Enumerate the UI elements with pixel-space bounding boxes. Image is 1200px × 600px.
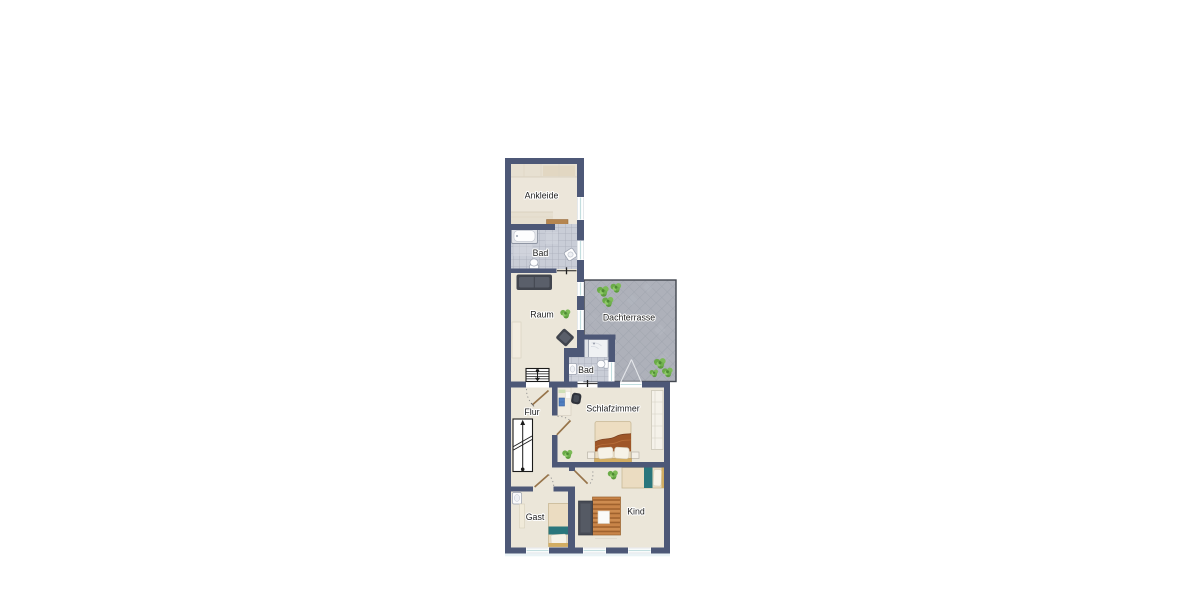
svg-text:Gast: Gast — [526, 512, 545, 522]
svg-text:Dachterrasse: Dachterrasse — [603, 312, 655, 322]
svg-text:Ankleide: Ankleide — [525, 191, 559, 201]
svg-text:Kind: Kind — [627, 506, 645, 516]
svg-text:Bad: Bad — [533, 248, 549, 258]
svg-text:Schlafzimmer: Schlafzimmer — [586, 403, 639, 413]
svg-text:Flur: Flur — [524, 407, 539, 417]
svg-text:Bad: Bad — [578, 365, 594, 375]
svg-text:Raum: Raum — [530, 309, 553, 319]
